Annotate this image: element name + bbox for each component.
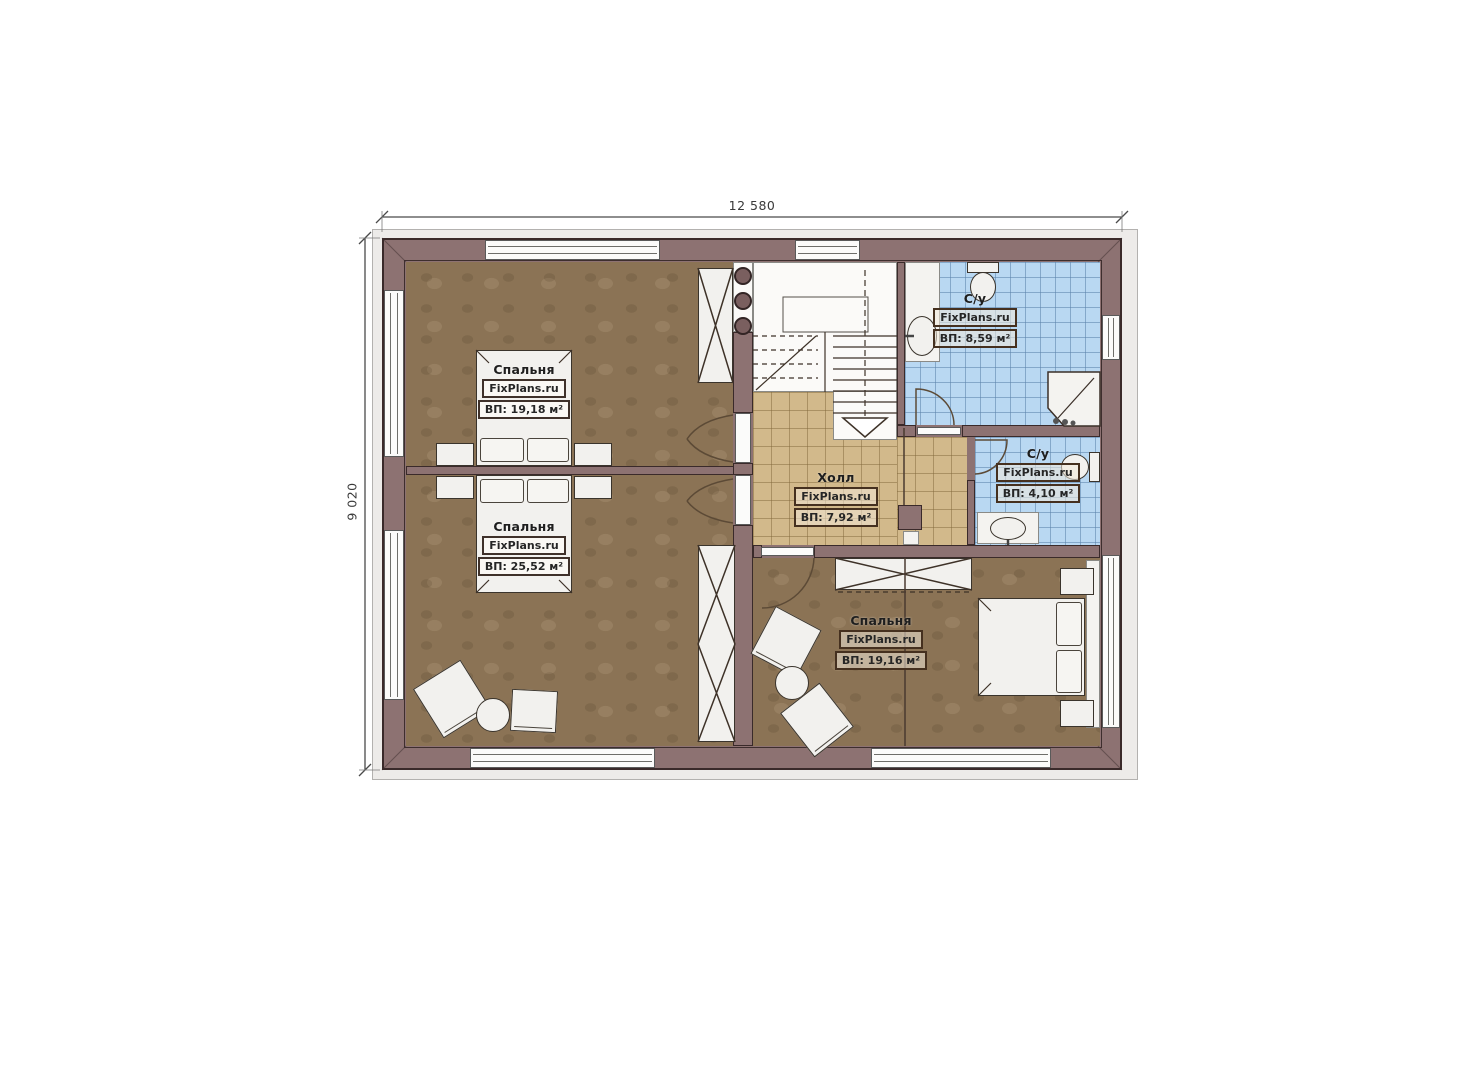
wardrobe-bedroom-bottom-left xyxy=(698,545,735,742)
brand-badge: FixPlans.ru xyxy=(794,487,877,506)
nightstand xyxy=(574,476,612,499)
room-area: ВП: 25,52 м² xyxy=(478,557,570,576)
room-label-bedroom-bottom-left: Спальня FixPlans.ru ВП: 25,52 м² xyxy=(449,519,599,576)
brand-badge: FixPlans.ru xyxy=(482,379,565,398)
wall-segment xyxy=(733,463,753,475)
pillow xyxy=(527,438,569,462)
room-label-bedroom-top-left: Спальня FixPlans.ru ВП: 19,18 м² xyxy=(449,362,599,419)
room-label-bathroom-large: С/у FixPlans.ru ВП: 8,59 м² xyxy=(900,291,1050,348)
room-label-hall: Холл FixPlans.ru ВП: 7,92 м² xyxy=(761,470,911,527)
wall-segment xyxy=(733,525,753,746)
room-area: ВП: 8,59 м² xyxy=(933,329,1018,348)
window-east-bedroom xyxy=(1102,555,1120,728)
room-area: ВП: 19,16 м² xyxy=(835,651,927,670)
room-name: Холл xyxy=(817,470,854,485)
door-opening-bathroom-large xyxy=(917,427,961,435)
wall-hall-south-b xyxy=(814,545,1100,558)
coffee-table xyxy=(476,698,510,732)
window-west-top xyxy=(384,290,404,457)
wall-bathroom-south-b xyxy=(962,425,1100,437)
brand-badge: FixPlans.ru xyxy=(996,463,1079,482)
room-name: Спальня xyxy=(850,613,911,628)
wall-bathroom-south-a xyxy=(897,425,916,437)
door-opening-bedroom-bottom-left xyxy=(735,475,751,525)
floor-plan-canvas: 12 580 9 020 Спальня FixPlans.ru ВП: 19,… xyxy=(0,0,1473,1080)
room-area: ВП: 7,92 м² xyxy=(794,508,879,527)
window-south-left xyxy=(470,748,655,768)
brand-badge: FixPlans.ru xyxy=(482,536,565,555)
pillow xyxy=(1056,650,1082,693)
brand-badge: FixPlans.ru xyxy=(839,630,922,649)
window-north-stair xyxy=(795,240,860,260)
duct-niche xyxy=(733,262,753,332)
staircase-lower-run xyxy=(833,392,897,440)
pillow xyxy=(480,479,524,503)
wall-segment xyxy=(733,332,753,413)
room-name: С/у xyxy=(964,291,987,306)
pillow xyxy=(480,438,524,462)
dimension-height: 9 020 xyxy=(345,472,360,532)
room-label-bedroom-right: Спальня FixPlans.ru ВП: 19,16 м² xyxy=(806,613,956,670)
door-opening-bedroom-top-left xyxy=(735,413,751,463)
wardrobe-bedroom-right xyxy=(835,558,972,590)
pillow xyxy=(527,479,569,503)
dimension-width: 12 580 xyxy=(702,198,802,213)
pillow xyxy=(1056,602,1082,646)
brand-badge: FixPlans.ru xyxy=(933,308,1016,327)
wall-between-left-bedrooms xyxy=(406,466,753,475)
armchair xyxy=(510,689,558,733)
room-area: ВП: 4,10 м² xyxy=(996,484,1081,503)
room-name: Спальня xyxy=(493,362,554,377)
staircase-area xyxy=(753,262,897,392)
room-area: ВП: 19,18 м² xyxy=(478,400,570,419)
wardrobe-bedroom-top-left xyxy=(698,268,733,383)
nightstand xyxy=(436,443,474,466)
room-name: Спальня xyxy=(493,519,554,534)
door-opening-bedroom-right xyxy=(761,547,814,556)
window-east-bathroom xyxy=(1102,315,1120,360)
hall-post-base xyxy=(903,531,919,545)
room-name: С/у xyxy=(1027,446,1050,461)
window-south-right xyxy=(871,748,1051,768)
nightstand xyxy=(436,476,474,499)
room-label-bathroom-small: С/у FixPlans.ru ВП: 4,10 м² xyxy=(963,446,1113,503)
nightstand xyxy=(1060,568,1094,595)
sink xyxy=(990,517,1026,540)
nightstand xyxy=(1060,700,1094,727)
window-west-bottom xyxy=(384,530,404,700)
window-north-left xyxy=(485,240,660,260)
nightstand xyxy=(574,443,612,466)
